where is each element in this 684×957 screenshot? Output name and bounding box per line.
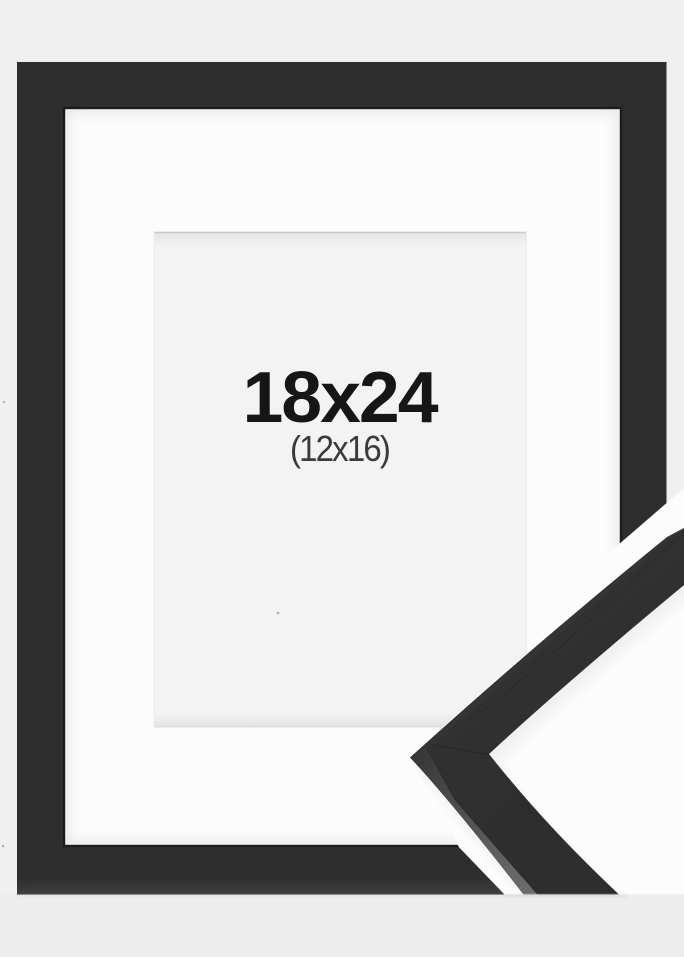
- svg-text:18x24: 18x24: [243, 358, 439, 438]
- svg-text:(12x16): (12x16): [290, 428, 389, 469]
